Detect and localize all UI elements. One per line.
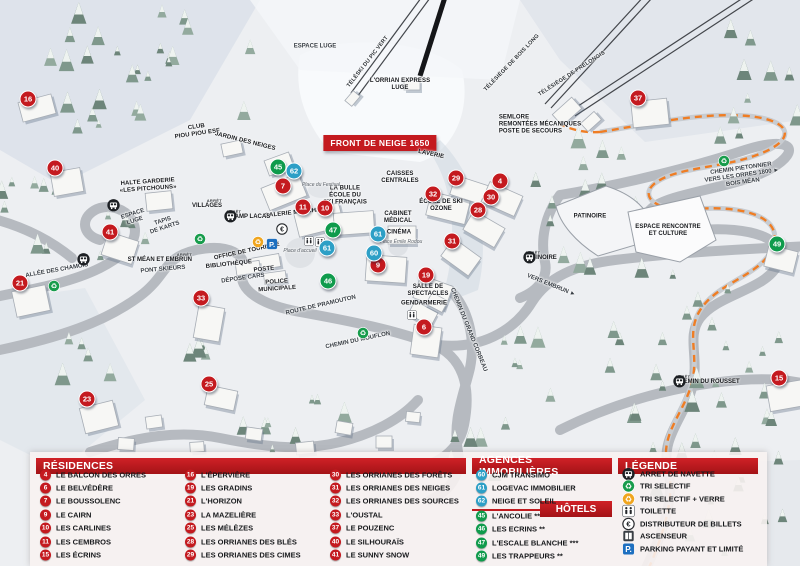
legend-item: 46LES ECRINS ** <box>476 524 545 535</box>
legend-item-label: LES CARLINES <box>56 524 111 533</box>
legend-item: 15LES ÉCRINS <box>40 549 101 560</box>
legend-item-label: LES ORRIANES DES NEIGES <box>346 483 450 492</box>
residence-marker-4: 4 <box>492 173 509 190</box>
residence-marker-28: 28 <box>470 202 487 219</box>
legend-item-label: LES ORRIANES DES FORÊTS <box>346 470 452 479</box>
legend-item-label: LES ORRIANES DES BLÉS <box>201 537 297 546</box>
legend-item-number: 32 <box>330 496 341 507</box>
legend-item: 4LE BALCON DES ORRES <box>40 469 146 480</box>
agence-marker-60: 60 <box>366 245 383 262</box>
legend-item-label: LE POUZENC <box>346 524 394 533</box>
legend-item: 10LES CARLINES <box>40 523 111 534</box>
legend-item: TOILETTE <box>622 505 676 518</box>
legend-item-label: LES TRAPPEURS ** <box>492 552 563 561</box>
bus-stop: ARRÊTPATINOIRE <box>523 251 557 261</box>
legend-item: 9LE CAIRN <box>40 509 91 520</box>
legend-item-label: TOILETTE <box>640 507 676 516</box>
legend-item-label: LES CEMBROS <box>56 537 111 546</box>
bus-stop: ARRÊTCHEMIN DU ROUSSET <box>673 375 740 385</box>
legend-item: 40LE SILHOURAÏS <box>330 536 404 547</box>
residence-marker-21: 21 <box>12 275 29 292</box>
legend-item-label: L'OUSTAL <box>346 510 383 519</box>
legend-item-label: LES GRADINS <box>201 483 252 492</box>
legend-item: 28LES ORRIANES DES BLÉS <box>185 536 297 547</box>
resort-map: ♻ ♻ € P. <box>0 0 800 566</box>
legend-item-number: 25 <box>185 523 196 534</box>
residence-marker-16: 16 <box>20 91 37 108</box>
legend-item-number: 61 <box>476 482 487 493</box>
agence-marker-61: 61 <box>319 240 336 257</box>
legend-item-number: 15 <box>40 549 51 560</box>
bus-icon <box>622 467 635 480</box>
legend-item: 16L'ÉPERVIÈRE <box>185 469 250 480</box>
legend-item-label: NEIGE ET SOLEIL <box>492 496 556 505</box>
legend-item-label: DISTRIBUTEUR DE BILLETS <box>640 519 742 528</box>
legend-item: 6LE BELVÉDÈRE <box>40 482 113 493</box>
parking-icon <box>622 542 635 555</box>
legend-item-label: LA MAZELIÈRE <box>201 510 256 519</box>
hotel-marker-49: 49 <box>769 236 786 253</box>
legend-item: 47L'ESCALE BLANCHE *** <box>476 537 578 548</box>
legend-item-label: LE BOUSSOLENC <box>56 497 121 506</box>
legend-item-label: TRI SELECTIF + VERRE <box>640 494 725 503</box>
legend-item-label: LES ORRIANES DES SOURCES <box>346 497 459 506</box>
legend-item-label: L'ÉPERVIÈRE <box>201 470 250 479</box>
legend-item-label: LOGEVAC IMMOBILIER <box>492 483 576 492</box>
legend-item-label: LE SUNNY SNOW <box>346 550 409 559</box>
residence-marker-25: 25 <box>201 376 218 393</box>
legend-item-number: 60 <box>476 469 487 480</box>
legend-item-label: TRI SELECTIF <box>640 482 690 491</box>
legend-item: 32LES ORRIANES DES SOURCES <box>330 496 459 507</box>
legend-panel: RÉSIDENCES AGENCES IMMOBILIÈRES LÉGENDE … <box>30 452 767 566</box>
legend-item: 23LA MAZELIÈRE <box>185 509 256 520</box>
agence-marker-62: 62 <box>286 163 303 180</box>
legend-item-label: LES ÉCRINS <box>56 550 101 559</box>
legend-item-number: 7 <box>40 496 51 507</box>
residence-marker-19: 19 <box>418 267 435 284</box>
residence-marker-23: 23 <box>79 391 96 408</box>
legend-item: TRI SELECTIF <box>622 480 690 493</box>
legend-item-number: 23 <box>185 509 196 520</box>
legend-item-number: 10 <box>40 523 51 534</box>
legend-item-number: 46 <box>476 524 487 535</box>
recycle-green-icon <box>622 480 635 493</box>
legend-item: 29LES ORRIANES DES CIMES <box>185 549 301 560</box>
legend-item-number: 6 <box>40 482 51 493</box>
atm-icon <box>622 517 635 530</box>
legend-item: PARKING PAYANT ET LIMITÉ <box>622 542 743 555</box>
legend-item-number: 19 <box>185 482 196 493</box>
residence-marker-40: 40 <box>47 160 64 177</box>
residence-marker-7: 7 <box>275 178 292 195</box>
hotel-marker-47: 47 <box>325 222 342 239</box>
legend-item: 31LES ORRIANES DES NEIGES <box>330 482 450 493</box>
bus-stop: ARRÊTST MÉAN ET EMBRUN <box>77 253 194 263</box>
legend-item-number: 33 <box>330 509 341 520</box>
residence-marker-37: 37 <box>630 90 647 107</box>
legend-item-number: 41 <box>330 549 341 560</box>
elevator-icon <box>622 530 635 543</box>
legend-item-number: 37 <box>330 523 341 534</box>
legend-item-label: LE SILHOURAÏS <box>346 537 404 546</box>
bus-stop: ARRÊTCHAMP LACAS <box>224 210 270 220</box>
legend-item-label: LES MÉLÈZES <box>201 524 253 533</box>
legend-item: 37LE POUZENC <box>330 523 394 534</box>
residence-marker-15: 15 <box>771 370 788 387</box>
legend-item-number: 40 <box>330 536 341 547</box>
front-de-neige-banner: FRONT DE NEIGE 1650 <box>323 135 436 151</box>
plaza-festival <box>308 182 336 198</box>
legend-item: 60CJM TRANSIMO <box>476 469 550 480</box>
legend-item-number: 31 <box>330 482 341 493</box>
legend-item: ARRET DE NAVETTE <box>622 467 715 480</box>
legend-item: 7LE BOUSSOLENC <box>40 496 121 507</box>
hotel-marker-45: 45 <box>270 159 287 176</box>
legend-item-number: 29 <box>185 549 196 560</box>
toilet-icon <box>622 505 635 518</box>
bus-stop: ARRÊTVILLAGES <box>107 199 224 209</box>
legend-item: 61LOGEVAC IMMOBILIER <box>476 482 576 493</box>
residence-marker-31: 31 <box>444 233 461 250</box>
legend-item-label: CJM TRANSIMO <box>492 470 550 479</box>
residence-marker-30: 30 <box>483 189 500 206</box>
legend-item-number: 16 <box>185 469 196 480</box>
legend-item-label: L'ESCALE BLANCHE *** <box>492 538 578 547</box>
legend-item-number: 30 <box>330 469 341 480</box>
legend-item-number: 11 <box>40 536 51 547</box>
legend-item-number: 45 <box>476 511 487 522</box>
legend-item-label: LES ORRIANES DES CIMES <box>201 550 301 559</box>
legend-item: TRI SELECTIF + VERRE <box>622 492 725 505</box>
residence-marker-10: 10 <box>317 200 334 217</box>
residence-marker-6: 6 <box>416 319 433 336</box>
legend-item-label: ASCENSEUR <box>640 532 687 541</box>
legend-item-number: 21 <box>185 496 196 507</box>
legend-item: 45L'ANCOLIE ** <box>476 511 540 522</box>
legend-item-label: ARRET DE NAVETTE <box>640 469 715 478</box>
legend-item: 62NEIGE ET SOLEIL <box>476 495 556 506</box>
legend-item-label: LES ECRINS ** <box>492 525 545 534</box>
legend-item-label: L'ANCOLIE ** <box>492 512 540 521</box>
legend-item-number: 49 <box>476 551 487 562</box>
legend-item-number: 4 <box>40 469 51 480</box>
hotel-marker-46: 46 <box>320 273 337 290</box>
legend-item: 49LES TRAPPEURS ** <box>476 551 563 562</box>
legend-item-label: L'HORIZON <box>201 497 242 506</box>
legend-item: ASCENSEUR <box>622 530 687 543</box>
legend-item: 41LE SUNNY SNOW <box>330 549 409 560</box>
legend-item-label: LE BELVÉDÈRE <box>56 483 113 492</box>
agence-marker-61: 61 <box>370 226 387 243</box>
residence-marker-29: 29 <box>448 170 465 187</box>
legend-item-number: 28 <box>185 536 196 547</box>
legend-item: 11LES CEMBROS <box>40 536 111 547</box>
residence-marker-41: 41 <box>102 224 119 241</box>
legend-item: 21L'HORIZON <box>185 496 242 507</box>
legend-item-label: PARKING PAYANT ET LIMITÉ <box>640 544 743 553</box>
recycle-yellow-icon <box>622 492 635 505</box>
legend-item-number: 47 <box>476 537 487 548</box>
legend-item-number: 62 <box>476 495 487 506</box>
legend-item-label: LE BALCON DES ORRES <box>56 470 146 479</box>
legend-item-label: LE CAIRN <box>56 510 91 519</box>
legend-item: 33L'OUSTAL <box>330 509 383 520</box>
legend-item: 19LES GRADINS <box>185 482 252 493</box>
residence-marker-11: 11 <box>295 199 312 216</box>
legend-item: 25LES MÉLÈZES <box>185 523 253 534</box>
residence-marker-33: 33 <box>193 290 210 307</box>
legend-item: DISTRIBUTEUR DE BILLETS <box>622 517 742 530</box>
residence-marker-32: 32 <box>425 186 442 203</box>
legend-item: 30LES ORRIANES DES FORÊTS <box>330 469 452 480</box>
legend-item-number: 9 <box>40 509 51 520</box>
